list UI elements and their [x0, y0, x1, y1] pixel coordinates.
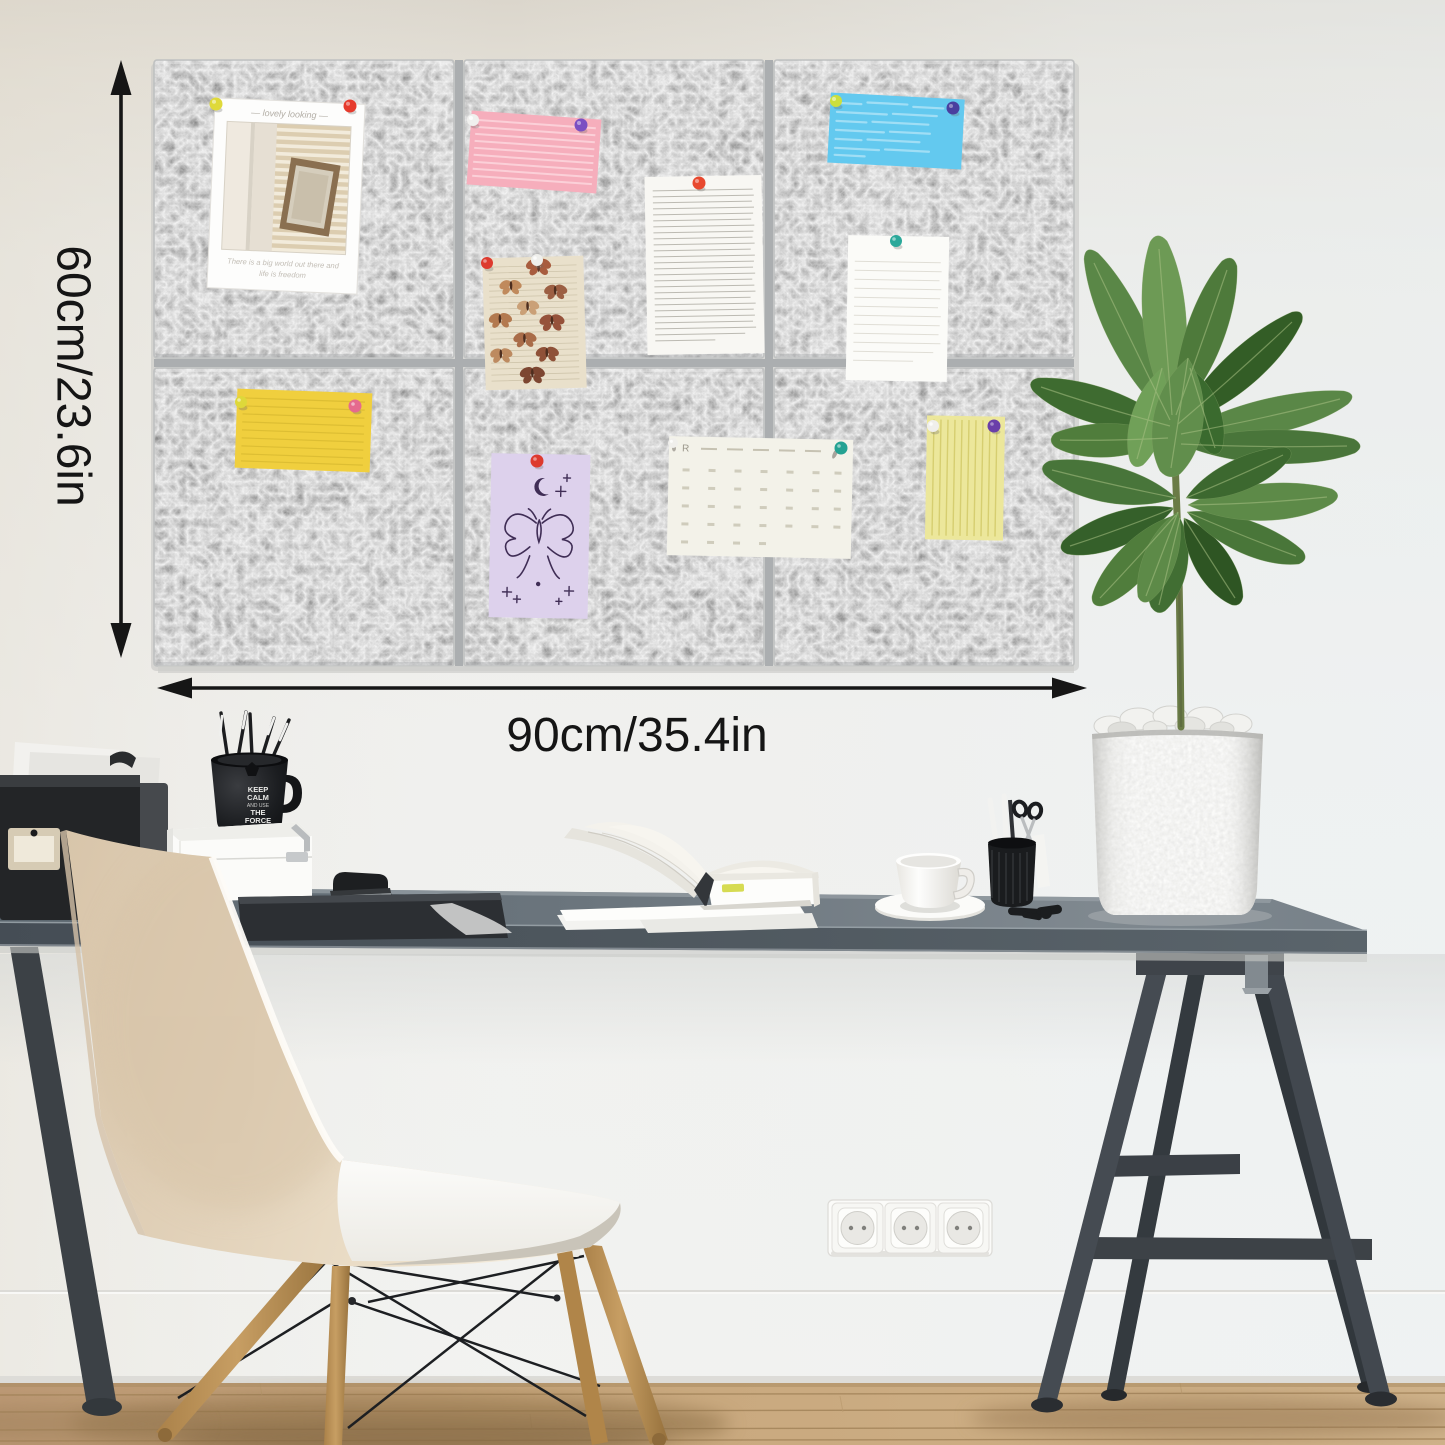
svg-text:60cm/23.6in: 60cm/23.6in [46, 245, 99, 507]
svg-text:90cm/35.4in: 90cm/35.4in [506, 709, 768, 762]
svg-text:CALM: CALM [247, 793, 269, 802]
svg-text:R: R [682, 443, 689, 454]
svg-text:FORCE: FORCE [245, 816, 271, 825]
